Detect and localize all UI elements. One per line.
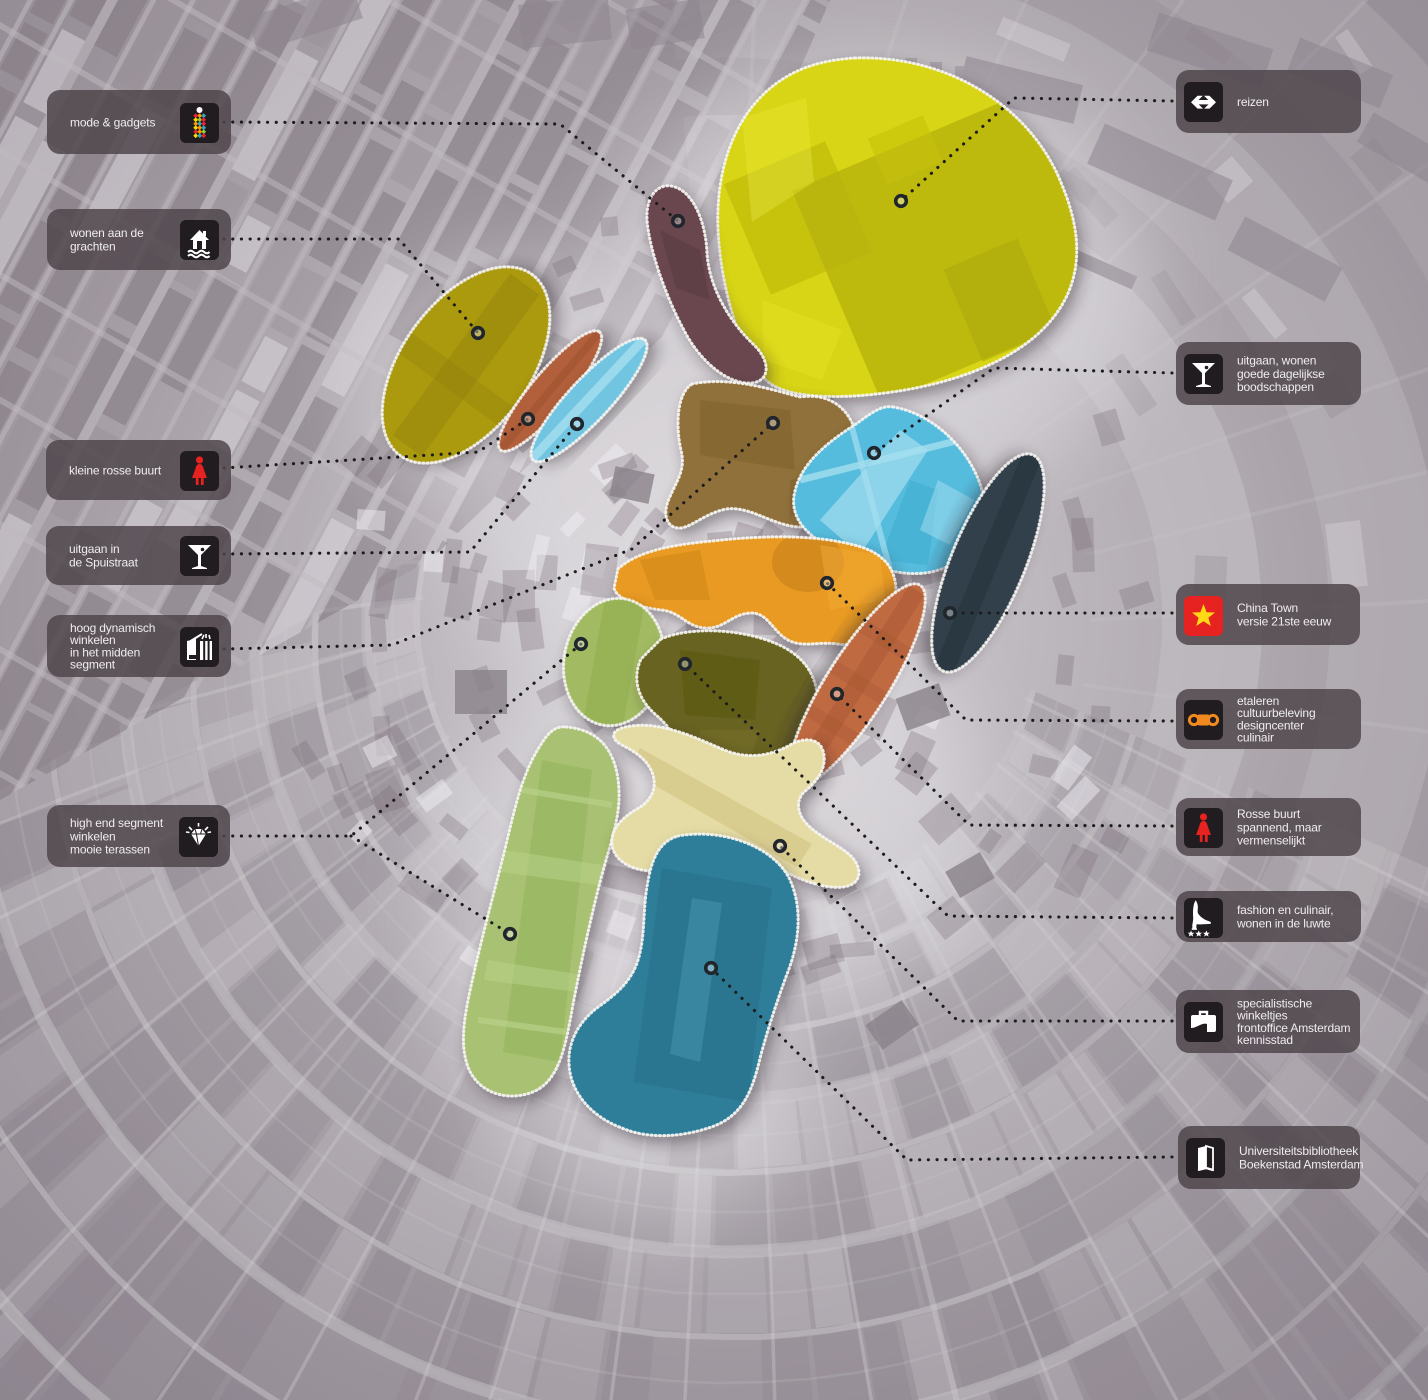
svg-text:reizen: reizen (1237, 95, 1269, 109)
svg-text:winkelen: winkelen (69, 829, 116, 843)
svg-text:vermenselijkt: vermenselijkt (1237, 834, 1306, 848)
svg-text:mooie terassen: mooie terassen (70, 843, 150, 857)
svg-text:kennisstad: kennisstad (1237, 1033, 1293, 1047)
svg-text:segment: segment (70, 658, 116, 672)
svg-text:China Town: China Town (1237, 601, 1298, 615)
svg-text:boodschappen: boodschappen (1237, 380, 1314, 394)
svg-text:kleine rosse buurt: kleine rosse buurt (69, 463, 162, 477)
svg-text:wonen aan de: wonen aan de (69, 226, 144, 240)
svg-text:versie 21ste eeuw: versie 21ste eeuw (1237, 615, 1332, 629)
svg-text:fashion en culinair,: fashion en culinair, (1237, 903, 1333, 917)
svg-text:wonen in de luwte: wonen in de luwte (1236, 917, 1331, 931)
svg-text:de Spuistraat: de Spuistraat (69, 556, 139, 570)
svg-text:uitgaan, wonen: uitgaan, wonen (1237, 354, 1316, 368)
svg-text:goede dagelijkse: goede dagelijkse (1237, 367, 1325, 381)
svg-text:mode & gadgets: mode & gadgets (70, 115, 155, 129)
svg-text:uitgaan in: uitgaan in (69, 542, 120, 556)
svg-text:Universiteitsbibliotheek: Universiteitsbibliotheek (1239, 1144, 1359, 1158)
svg-text:culinair: culinair (1237, 731, 1274, 745)
svg-text:high end segment: high end segment (70, 816, 164, 830)
svg-text:grachten: grachten (70, 240, 116, 254)
svg-text:Rosse buurt: Rosse buurt (1237, 807, 1301, 821)
svg-text:Boekenstad Amsterdam: Boekenstad Amsterdam (1239, 1158, 1364, 1172)
svg-text:spannend, maar: spannend, maar (1237, 820, 1322, 834)
